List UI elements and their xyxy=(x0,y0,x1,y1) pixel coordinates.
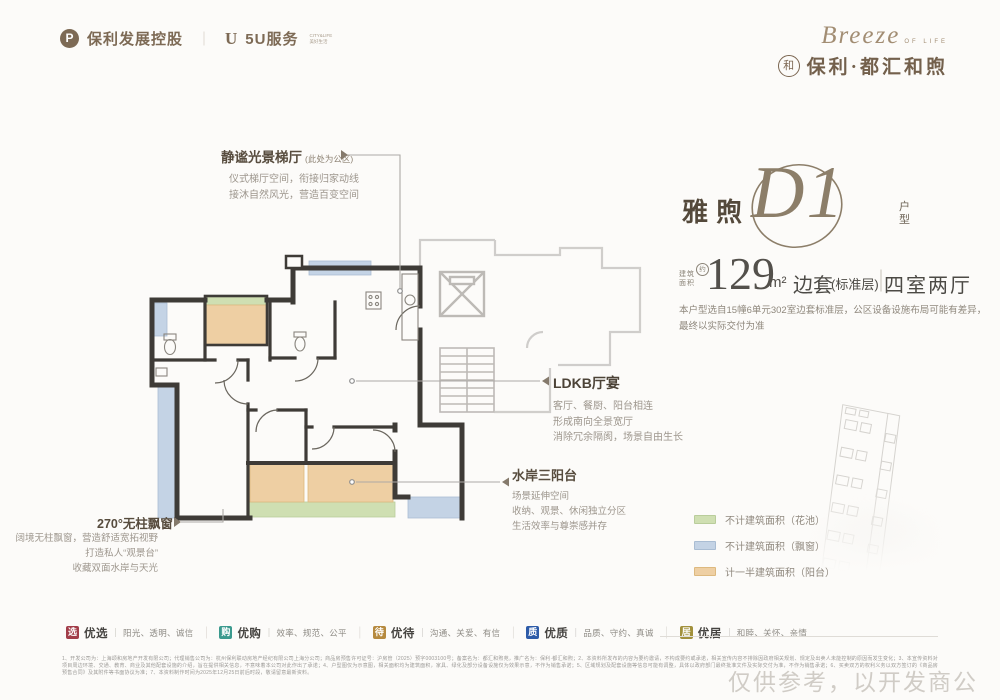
badge-icon-gou: 购 xyxy=(219,626,232,639)
legend-item-flowerbed: 不计建筑面积（花池） xyxy=(694,512,835,527)
annotation-lobby: 静谧光景梯厅(此处为公区) 仪式梯厅空间，衔接归家动线 接沐自然风光，营造百变空… xyxy=(221,146,359,204)
developer-logo-group: P 保利发展控股 ｜ U 5U服务 CITY&LIFE 美好生活 xyxy=(60,28,332,49)
service-badges-bar: 选 优选｜阳光、透明、诚信 ｜ 购 优购｜效率、规范、公平 ｜ 待 优待｜沟通、… xyxy=(66,624,807,641)
floorplan-poster: P 保利发展控股 ｜ U 5U服务 CITY&LIFE 美好生活 BreezeO… xyxy=(0,0,1000,700)
5u-logo-icon: U xyxy=(225,29,237,49)
badge-youxuan: 选 优选｜阳光、透明、诚信 xyxy=(66,625,193,641)
service-tagline: CITY&LIFE 美好生活 xyxy=(309,33,332,45)
brand-script-text: Breeze xyxy=(821,22,900,49)
annotation-ldkb: LDKB厅宴 客厅、餐厨、阳台相连 形成南向全景宽厅 消除冗余隔阂，场景自由生长 xyxy=(553,373,683,446)
badge-icon-zhi: 质 xyxy=(526,626,539,639)
badge-icon-dai: 待 xyxy=(373,626,386,639)
badge-yougou: 购 优购｜效率、规范、公平 xyxy=(219,625,346,641)
legend-swatch-green xyxy=(694,515,716,524)
plan-code: D1 xyxy=(751,156,845,230)
brand-script-subtext: OF LIFE xyxy=(904,39,948,45)
developer-logo-text: 保利发展控股 xyxy=(87,28,183,49)
annotation-balcony: 水岸三阳台 场景延伸空间 收纳、观景、休闲独立分区 生活效率与尊崇感并存 xyxy=(512,465,626,534)
annotation-baywindow-lines: 阔境无柱飘窗，营造舒适宽拓视野 打造私人“观景台” 收藏双面水岸与天光 xyxy=(8,531,158,576)
annotation-baywindow-title: 270°无柱飘窗 xyxy=(97,513,173,532)
balcony-zones xyxy=(205,305,393,502)
badge-youdai: 待 优待｜沟通、关爱、有信 xyxy=(373,625,500,641)
room-layout: 四室两厅 xyxy=(884,269,972,298)
badge-icon-xuan: 选 xyxy=(66,626,79,639)
elevator-shaft xyxy=(440,272,484,316)
legend: 不计建筑面积（花池） 不计建筑面积（飘窗） 计一半建筑面积（阳台） xyxy=(694,512,835,590)
legend-swatch-blue xyxy=(694,541,716,550)
plan-source-note: 本户型选自15幢6单元302室边套标准层，公区设备设施布局可能有差异， 最终以实… xyxy=(679,303,986,335)
service-logo-text: 5U服务 xyxy=(245,28,298,49)
badge-icon-ju: 居 xyxy=(680,626,693,639)
badges-rule xyxy=(660,636,938,637)
legend-item-balcony: 计一半建筑面积（阳台） xyxy=(694,564,835,579)
brand-seal-icon: 和 xyxy=(778,55,800,77)
brand-name: 保利·都汇和煦 xyxy=(807,52,948,79)
brand-logo-group: BreezeOF LIFE 和 保利·都汇和煦 xyxy=(778,22,948,79)
plan-series-title: 雅煦 xyxy=(682,192,750,229)
unit-position: 边套 xyxy=(793,269,833,298)
header-divider: ｜ xyxy=(197,29,211,49)
poly-logo-icon: P xyxy=(60,29,79,48)
unit-walls xyxy=(152,256,462,518)
badge-youju: 居 优居｜和睦、关怀、亲情 xyxy=(680,625,807,641)
area-value: 129 xyxy=(706,251,775,297)
legend-item-baywindow: 不计建筑面积（飘窗） xyxy=(694,538,835,553)
badge-youzhi: 质 优质｜品质、守约、真诚 xyxy=(526,625,653,641)
plan-type-label: 户 型 xyxy=(899,201,910,227)
stairs xyxy=(440,348,494,412)
area-unit: m² xyxy=(769,274,787,291)
legend-swatch-orange xyxy=(694,567,716,576)
reference-watermark: 仅供参考，以开发商公示为准 xyxy=(728,663,1000,700)
